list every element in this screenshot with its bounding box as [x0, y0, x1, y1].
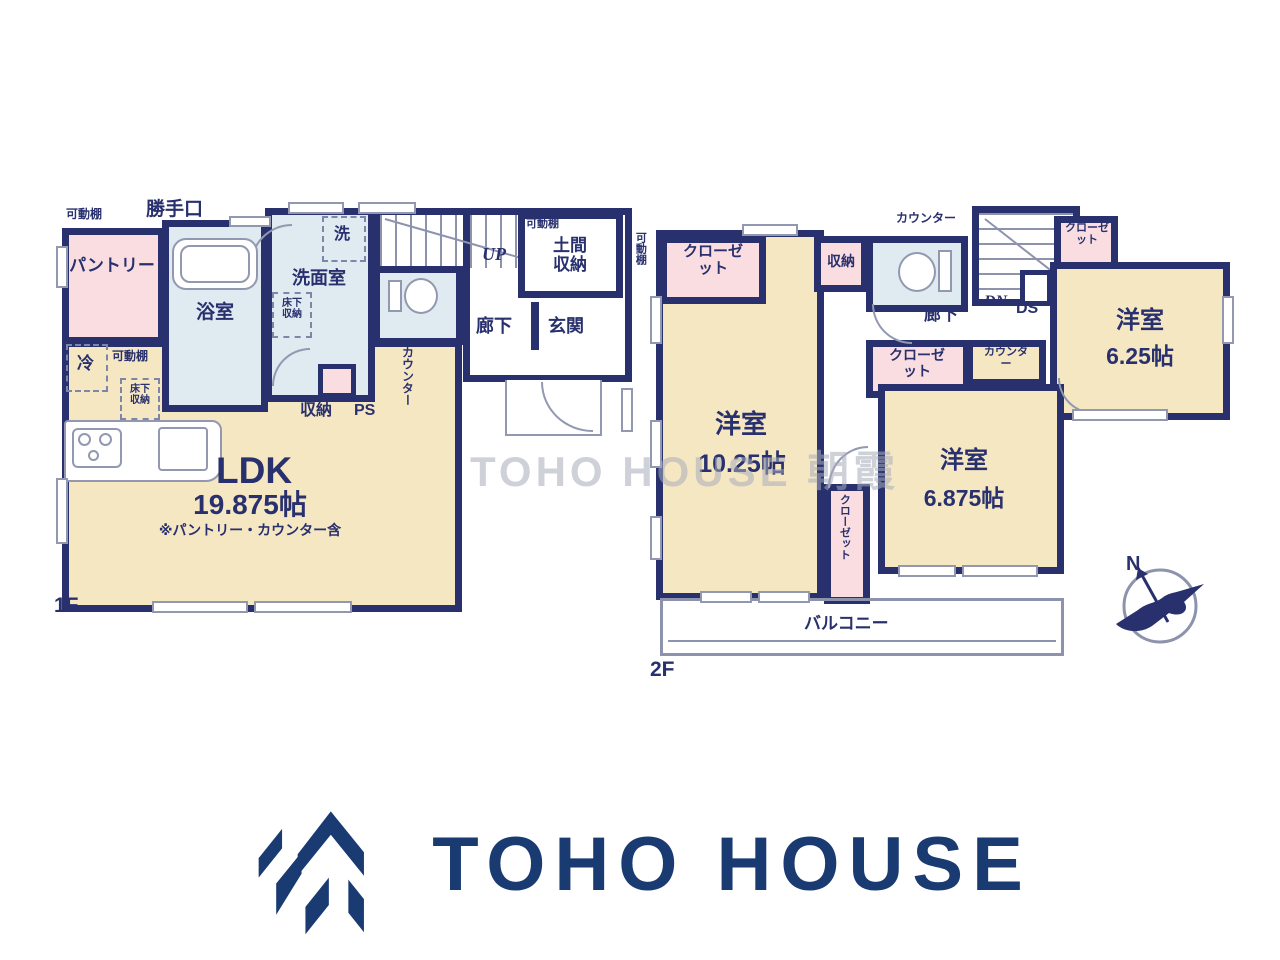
window [254, 601, 352, 613]
toho-house-logo-icon [248, 786, 398, 942]
wall-hall-entrance [531, 302, 539, 350]
sink-icon [158, 427, 208, 471]
window [152, 601, 248, 613]
label-hall-2f: 廊下 [924, 305, 958, 324]
window [758, 591, 810, 603]
window [1072, 409, 1168, 421]
label-doma-storage: 土間収納 [550, 236, 590, 274]
label-floor-1f: 1F [54, 594, 79, 618]
label-room-south-size: 6.875帖 [882, 486, 1046, 512]
window [898, 565, 956, 577]
label-storage-1f: 収納 [300, 402, 332, 420]
toilet-door-arc [872, 304, 912, 344]
compass-north-label: N [1126, 553, 1140, 575]
label-washroom: 洗面室 [266, 268, 372, 288]
label-closet-ne: クローゼット [1062, 222, 1112, 247]
window [962, 565, 1038, 577]
label-ldk-size: 19.875帖 [140, 489, 360, 520]
window [650, 516, 662, 560]
balcony-inner-line [668, 640, 1056, 642]
storage-box-1f [318, 364, 356, 398]
burner-icon [99, 433, 112, 446]
label-closet-nw: クローゼット [680, 244, 746, 278]
label-counter-mid: カウンター [980, 346, 1032, 371]
label-room-east-size: 6.25帖 [1080, 344, 1200, 370]
label-fridge: 冷 [77, 354, 94, 373]
label-shelf-right: 可動棚 [634, 232, 646, 265]
label-closet-mid: クローゼット [884, 348, 950, 379]
compass-icon: N [1106, 548, 1210, 652]
watermark-text: TOHO HOUSE 朝霞 [470, 438, 899, 499]
label-room-south: 洋室 [884, 448, 1044, 475]
brand-logo-text: TOHO HOUSE [432, 821, 1032, 908]
toilet-tank-1f-icon [388, 280, 402, 312]
label-underfloor-wash: 床下収納 [278, 298, 306, 320]
brand-logo: TOHO HOUSE [0, 786, 1280, 942]
label-floor-2f: 2F [650, 658, 675, 682]
window [1222, 296, 1234, 344]
toilet-tank-2f-icon [938, 250, 952, 292]
window [742, 224, 798, 236]
toilet-bowl-1f-icon [404, 278, 438, 314]
window [700, 591, 752, 603]
label-stairs-down: DN [984, 293, 1007, 311]
room-south-6875 [878, 384, 1064, 574]
toilet-bowl-2f-icon [898, 252, 936, 292]
label-room-main: 洋室 [668, 410, 814, 439]
burner-icon [88, 450, 99, 461]
label-back-door: 勝手口 [146, 199, 203, 220]
back-door-opening [229, 216, 271, 227]
label-ps: PS [354, 402, 375, 420]
window [358, 202, 416, 214]
label-bath: 浴室 [166, 302, 264, 323]
label-stairs-up: UP [482, 244, 506, 264]
label-balcony: バルコニー [804, 614, 889, 633]
label-counter-1f: カウンター [400, 346, 413, 406]
label-entrance: 玄関 [548, 316, 584, 336]
window [650, 296, 662, 344]
label-shelf-top: 可動棚 [66, 208, 102, 221]
room-pantry [62, 228, 165, 344]
label-doma-shelf: 可動棚 [526, 218, 559, 230]
label-closet-vert: クローゼット [838, 494, 850, 560]
label-duct: DS [1016, 300, 1038, 318]
label-room-east: 洋室 [1080, 308, 1200, 335]
window [56, 478, 68, 544]
floorplan-canvas: 可動棚 勝手口 パントリー 浴室 洗面室 洗 床下収納 UP 可動棚 土間収納 … [0, 0, 1280, 960]
bathtub-inner-icon [180, 245, 250, 283]
label-storage-2f: 収納 [814, 254, 868, 270]
label-hall-1f: 廊下 [476, 316, 512, 336]
burner-icon [78, 433, 91, 446]
label-shelf-mid: 可動棚 [112, 350, 148, 363]
label-counter-top: カウンター [896, 212, 956, 225]
window [288, 202, 344, 214]
label-underfloor-ldk: 床下収納 [126, 384, 154, 406]
label-ldk-note: ※パントリー・カウンター含 [125, 523, 375, 539]
label-pantry: パントリー [62, 256, 162, 275]
label-washer: 洗 [334, 226, 350, 244]
label-ldk: LDK [216, 450, 292, 491]
window [621, 388, 633, 432]
